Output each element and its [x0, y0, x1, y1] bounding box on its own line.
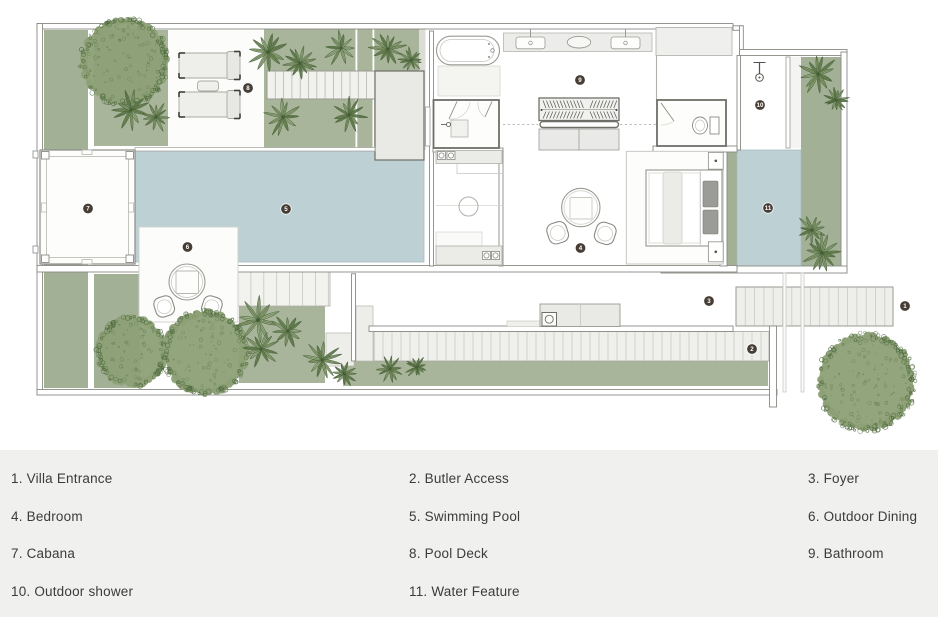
svg-text:3: 3 — [707, 298, 711, 305]
svg-text:5: 5 — [284, 206, 288, 213]
svg-text:11: 11 — [765, 205, 772, 212]
svg-text:1: 1 — [903, 303, 907, 310]
svg-text:10: 10 — [757, 102, 764, 109]
svg-text:8: 8 — [246, 85, 250, 92]
svg-text:6: 6 — [186, 244, 190, 251]
svg-text:4: 4 — [579, 245, 583, 252]
svg-text:7: 7 — [86, 206, 90, 213]
svg-text:2: 2 — [750, 346, 754, 353]
svg-text:9: 9 — [578, 77, 582, 84]
